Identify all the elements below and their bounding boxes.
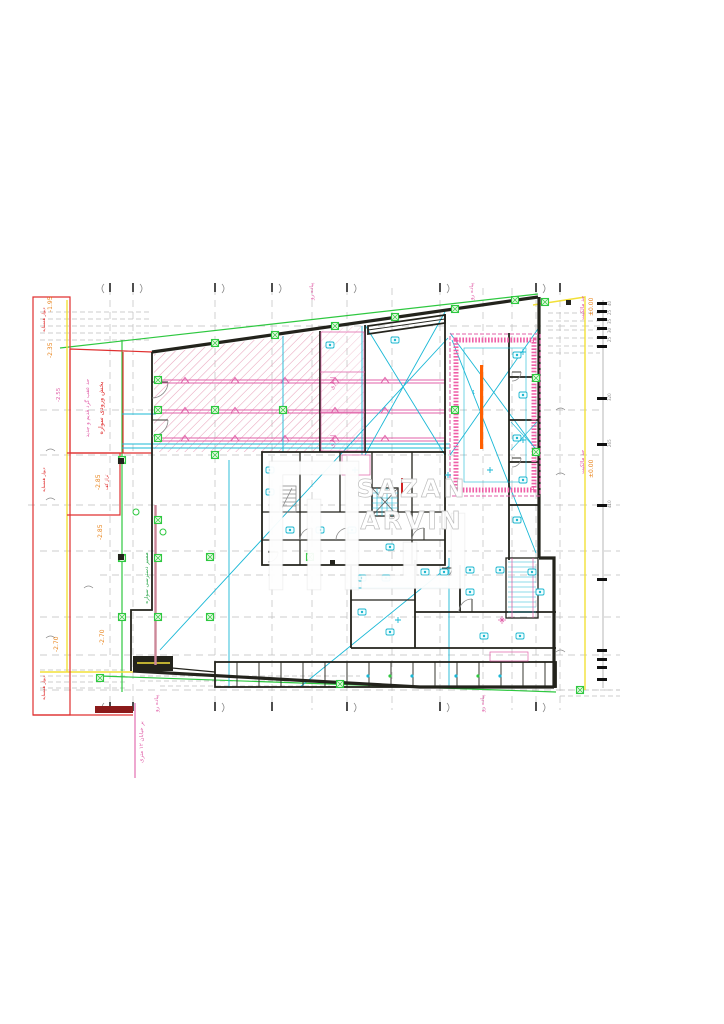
pool-zone: 1 bbox=[450, 334, 540, 496]
top-entrance-canopy bbox=[368, 315, 445, 334]
property-limit-label-2: حد مالکیت bbox=[579, 450, 586, 474]
watermark-line1: SAZAN bbox=[357, 474, 468, 503]
floor-plan-page: 40 25 35 30 25 320 265 410 bbox=[0, 0, 724, 1024]
ramp-edge-bar bbox=[95, 706, 133, 713]
floor-level-label: تراز کف bbox=[104, 474, 110, 490]
pool-mark-label: 1 bbox=[472, 390, 475, 396]
neighbor-wall-label-3: دیوار همسایه bbox=[42, 676, 47, 700]
dim-tick-1: 25 bbox=[607, 309, 612, 315]
elevation-low-b: -2.70 bbox=[99, 629, 106, 645]
sidewalk-label-top-2: پیاده رو bbox=[469, 282, 475, 301]
storage-label-1: انباری bbox=[330, 376, 336, 390]
storage-label-2: انباری bbox=[330, 434, 336, 448]
dim-tick-5: 320 bbox=[607, 393, 612, 401]
dim-tick-4: 25 bbox=[607, 336, 612, 342]
street-label: بر خیابان ۱۲ متری bbox=[139, 721, 145, 763]
neighbor-wall-label-2: دیوار همسایه bbox=[42, 468, 47, 492]
dim-tick-7: 410 bbox=[607, 500, 612, 508]
sidewalk-label-top-1: پیاده رو bbox=[309, 282, 315, 301]
dim-tick-0: 40 bbox=[607, 300, 612, 306]
sidewalk-label-bottom-2: پیاده رو bbox=[480, 694, 486, 713]
elevation-upper: -2.35 bbox=[47, 342, 54, 358]
stair-right bbox=[506, 558, 538, 618]
vehicle-access-label: مسیر دسترسی سواره bbox=[144, 552, 150, 604]
elevation-right-b: ±0.00 bbox=[588, 459, 595, 478]
stair-hatch-strip bbox=[490, 652, 528, 661]
entry-section-label: بخش ورودی سواره bbox=[97, 381, 105, 434]
neighbor-wall-label-1: دیوار همسایه bbox=[42, 308, 47, 332]
dim-tick-2: 35 bbox=[607, 318, 612, 324]
dimension-line-right: 40 25 35 30 25 320 265 410 bbox=[597, 300, 612, 688]
elevation-floor-a: -2.85 bbox=[95, 474, 102, 490]
dim-tick-3: 30 bbox=[607, 327, 612, 333]
sidewalk-label-bottom-1: پیاده رو bbox=[154, 694, 160, 713]
left-annotation-panel bbox=[33, 297, 152, 715]
orange-highlight-bar bbox=[480, 365, 483, 449]
property-limit-label-1: حد مالکیت bbox=[579, 296, 586, 320]
dim-tick-6: 265 bbox=[607, 439, 612, 447]
setback-label: حد عقب گرد قدیم و جدید bbox=[84, 379, 91, 438]
elevation-low-a: -2.70 bbox=[53, 636, 60, 652]
elevation-mid: -2.55 bbox=[56, 387, 62, 402]
floor-plan-drawing: 40 25 35 30 25 320 265 410 bbox=[0, 0, 724, 1024]
watermark-line2: ARVIN bbox=[360, 506, 463, 535]
elevation-right-a: ±0.00 bbox=[588, 297, 595, 316]
elevation-floor-b: -2.85 bbox=[97, 524, 104, 540]
elevation-top: -1.95 bbox=[47, 296, 54, 312]
